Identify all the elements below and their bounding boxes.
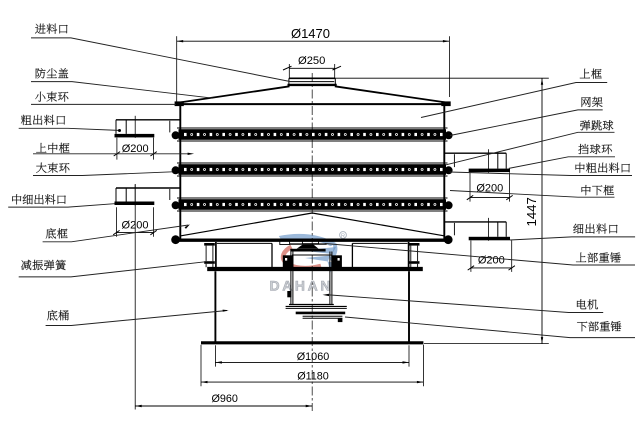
svg-text:Ø1060: Ø1060 (297, 351, 329, 363)
svg-text:1447: 1447 (524, 197, 539, 226)
svg-text:Ø960: Ø960 (211, 393, 237, 405)
svg-text:Ø1470: Ø1470 (291, 26, 330, 41)
svg-text:Ø1180: Ø1180 (297, 371, 329, 383)
svg-text:DAHAN: DAHAN (270, 278, 334, 294)
svg-text:Ø200: Ø200 (478, 255, 505, 267)
svg-text:Ø200: Ø200 (122, 143, 149, 155)
svg-text:Ø250: Ø250 (298, 55, 325, 67)
